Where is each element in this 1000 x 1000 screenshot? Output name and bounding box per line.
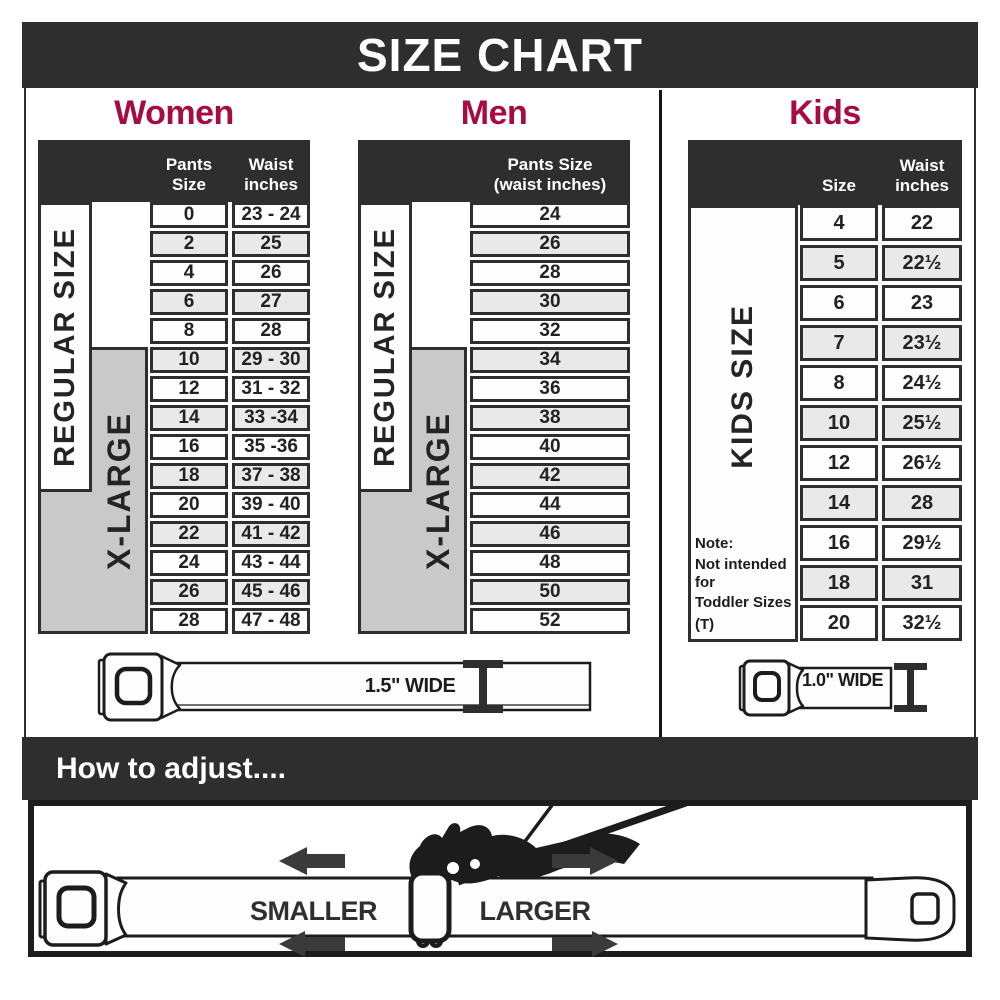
kids-belt-width-label: 1.0" WIDE (795, 670, 890, 691)
table-cell: 40 (470, 434, 630, 460)
fingernail-icon (469, 858, 481, 870)
table-cell: 31 - 32 (232, 376, 310, 402)
kids-note-line1: Note: (695, 531, 795, 556)
table-cell: 10 (150, 347, 228, 373)
table-cell: 16 (800, 525, 878, 561)
table-cell: 26 (232, 260, 310, 286)
table-cell: 4 (800, 205, 878, 241)
men-regular-band: REGULAR SIZE (358, 202, 412, 492)
seatbelt-buckle-icon (740, 661, 803, 715)
table-cell: 43 - 44 (232, 550, 310, 576)
kids-note-line3: Toddler Sizes (T) (695, 592, 795, 636)
table-cell: 23 (882, 285, 962, 321)
kids-col-waist-l1: Waist (882, 156, 962, 176)
table-cell: 22 (150, 521, 228, 547)
table-cell: 8 (800, 365, 878, 401)
table-cell: 47 - 48 (232, 608, 310, 634)
fingernail-icon (446, 861, 460, 875)
table-cell: 36 (470, 376, 630, 402)
table-cell: 24½ (882, 365, 962, 401)
women-regular-band: REGULAR SIZE (38, 202, 92, 492)
width-gauge-icon (894, 663, 927, 712)
table-cell: 39 - 40 (232, 492, 310, 518)
table-cell: 26 (150, 579, 228, 605)
section-divider (659, 90, 662, 737)
table-cell: 5 (800, 245, 878, 281)
table-cell: 12 (150, 376, 228, 402)
table-cell: 28 (150, 608, 228, 634)
size-chart-page: SIZE CHART Women Pants Size Waist inches… (0, 0, 1000, 1000)
women-pants-size-column: 0 2 4 6 8 10 12 14 16 18 20 22 24 26 28 (150, 202, 228, 634)
men-xlarge-label: X-LARGE (420, 412, 457, 570)
table-cell: 14 (150, 405, 228, 431)
table-cell: 29 - 30 (232, 347, 310, 373)
kids-note-line2: Not intended for (695, 556, 795, 592)
table-cell: 33 -34 (232, 405, 310, 431)
men-section-title: Men (358, 94, 630, 133)
women-col-waist-l2: inches (232, 175, 310, 195)
adjuster-slider (411, 873, 449, 946)
table-cell: 41 - 42 (232, 521, 310, 547)
table-cell: 32½ (882, 605, 962, 641)
page-title: SIZE CHART (22, 22, 978, 88)
table-cell: 52 (470, 608, 630, 634)
table-cell: 6 (150, 289, 228, 315)
seatbelt-buckle-icon (99, 654, 180, 720)
table-cell: 2 (150, 231, 228, 257)
table-cell: 0 (150, 202, 228, 228)
kids-col-waist-l2: inches (882, 176, 962, 196)
table-cell: 26 (470, 231, 630, 257)
table-cell: 22½ (882, 245, 962, 281)
table-cell: 18 (150, 463, 228, 489)
table-cell: 28 (232, 318, 310, 344)
men-col-header-l2: (waist inches) (470, 175, 630, 195)
table-cell: 28 (470, 260, 630, 286)
how-to-adjust-header: How to adjust.... (22, 737, 978, 800)
women-regular-label: REGULAR SIZE (49, 227, 82, 467)
table-cell: 35 -36 (232, 434, 310, 460)
table-cell: 28 (882, 485, 962, 521)
table-cell: 31 (882, 565, 962, 601)
women-xlarge-label: X-LARGE (101, 412, 138, 570)
table-cell: 32 (470, 318, 630, 344)
adult-belt-width-label: 1.5" WIDE (330, 675, 490, 698)
table-cell: 8 (150, 318, 228, 344)
table-cell: 26½ (882, 445, 962, 481)
women-section-title: Women (38, 94, 310, 133)
table-cell: 10 (800, 405, 878, 441)
table-cell: 30 (470, 289, 630, 315)
table-cell: 6 (800, 285, 878, 321)
adjust-illustration (28, 800, 972, 957)
women-col-pants-size: Pants Size (150, 155, 228, 195)
table-cell: 23 - 24 (232, 202, 310, 228)
table-cell: 20 (800, 605, 878, 641)
table-cell: 25½ (882, 405, 962, 441)
table-cell: 27 (232, 289, 310, 315)
kids-section-title: Kids (688, 94, 962, 133)
table-cell: 20 (150, 492, 228, 518)
kids-size-label: KIDS SIZE (726, 304, 760, 469)
table-cell: 18 (800, 565, 878, 601)
kids-note: Note: Not intended for Toddler Sizes (T) (695, 531, 795, 636)
smaller-label: SMALLER (250, 896, 370, 927)
table-cell: 34 (470, 347, 630, 373)
kids-col-size: Size (800, 176, 878, 196)
men-regular-label: REGULAR SIZE (369, 227, 402, 467)
kids-size-column: 4 5 6 7 8 10 12 14 16 18 20 (800, 205, 878, 641)
men-col-header-l1: Pants Size (470, 155, 630, 175)
table-cell: 12 (800, 445, 878, 481)
table-cell: 45 - 46 (232, 579, 310, 605)
kids-size-band: KIDS SIZE Note: Not intended for Toddler… (688, 205, 798, 642)
men-table-header: Pants Size (waist inches) (358, 140, 630, 202)
kids-table-header: Size Waist inches (688, 140, 962, 205)
table-cell: 23½ (882, 325, 962, 361)
table-cell: 24 (470, 202, 630, 228)
women-waist-column: 23 - 24 25 26 27 28 29 - 30 31 - 32 33 -… (232, 202, 310, 634)
table-cell: 48 (470, 550, 630, 576)
table-cell: 38 (470, 405, 630, 431)
table-cell: 50 (470, 579, 630, 605)
table-cell: 42 (470, 463, 630, 489)
table-cell: 4 (150, 260, 228, 286)
table-cell: 37 - 38 (232, 463, 310, 489)
table-cell: 24 (150, 550, 228, 576)
table-cell: 44 (470, 492, 630, 518)
table-cell: 29½ (882, 525, 962, 561)
larger-label: LARGER (475, 896, 595, 927)
table-cell: 25 (232, 231, 310, 257)
belt-tip (866, 878, 954, 940)
kids-waist-column: 22 22½ 23 23½ 24½ 25½ 26½ 28 29½ 31 32½ (882, 205, 962, 641)
table-cell: 7 (800, 325, 878, 361)
women-table-header: Pants Size Waist inches (38, 140, 310, 202)
table-cell: 16 (150, 434, 228, 460)
table-cell: 14 (800, 485, 878, 521)
women-col-waist-l1: Waist (232, 155, 310, 175)
men-pants-size-column: 24 26 28 30 32 34 36 38 40 42 44 46 48 5… (470, 202, 630, 634)
table-cell: 22 (882, 205, 962, 241)
seatbelt-buckle-icon (40, 872, 126, 945)
table-cell: 46 (470, 521, 630, 547)
